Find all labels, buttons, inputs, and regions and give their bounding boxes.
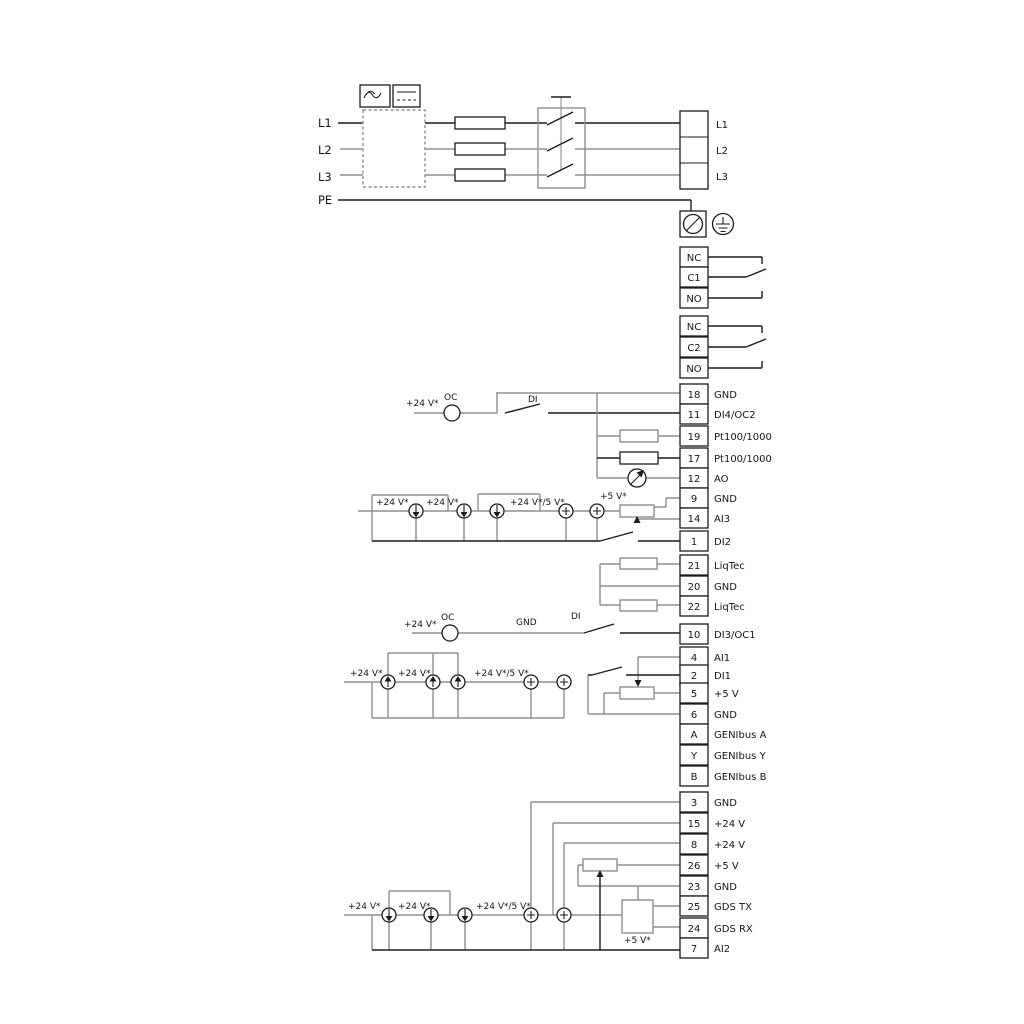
terminal-label: AI3: [714, 514, 730, 525]
terminal-label: +24 V: [714, 819, 745, 830]
wiring-diagram: L1 L2 L3 PE L1 L2 L3 NC: [0, 0, 1024, 1024]
wire-label-24v: +24 V*: [348, 902, 381, 912]
terminal-number: 14: [688, 514, 701, 525]
terminal-number: 17: [688, 454, 701, 465]
oc-node-icon: [444, 405, 460, 421]
wire-label-5v: +5 V*: [600, 492, 627, 502]
wiper-arrow-icon: [635, 680, 642, 687]
terminal-number: 22: [688, 602, 701, 613]
terminal-number: 18: [688, 390, 701, 401]
supply-network-row2: +24 V* +24 V* +24 V*/5 V*: [344, 653, 680, 718]
terminal-number: 15: [688, 819, 701, 830]
relay1-contact: [708, 257, 766, 298]
terminal-label: AI2: [714, 944, 730, 955]
terminal-label: GENIbus B: [714, 772, 767, 783]
power-terminal-group: +5 V* +24 V* +24 V* +24 V*/5 V* 3 GND 15…: [344, 792, 753, 958]
control-terminal-group: +24 V* OC GND DI +24 V* +24 V* +24 V*/5 …: [344, 612, 767, 786]
terminal-label: Pt100/1000: [714, 432, 772, 443]
mains-left-label: L3: [318, 170, 332, 184]
mains-left-label: L2: [318, 143, 332, 157]
di2-switch: [600, 532, 633, 541]
terminal-number: 26: [688, 861, 701, 872]
di3-switch: [584, 624, 680, 633]
wire-label-24v: +24 V*: [404, 620, 437, 630]
terminal-number: 2: [691, 671, 697, 682]
terminal-number: 6: [691, 710, 697, 721]
fuse-l2: [455, 143, 505, 155]
di1-switch: [588, 667, 680, 675]
terminal-label: DI1: [714, 671, 731, 682]
mains-right-label: L1: [716, 120, 728, 131]
terminal-label: AI1: [714, 653, 730, 664]
terminal-label: +5 V: [714, 689, 739, 700]
terminal-number: 23: [688, 882, 701, 893]
gds-sensor-box: [622, 900, 653, 933]
terminal-label: GND: [714, 710, 737, 721]
liqtec-sensor-1: [620, 558, 657, 569]
mains-right-label: L3: [716, 172, 728, 183]
terminal-label: GND: [714, 798, 737, 809]
terminal-label: GND: [714, 494, 737, 505]
mains-right-label: L2: [716, 146, 728, 157]
liqtec-wiring: [600, 564, 680, 605]
potentiometer: [620, 505, 654, 517]
mains-left-label: L1: [318, 116, 332, 130]
terminal-label: LiqTec: [714, 602, 745, 613]
io-terminal-group: +24 V* OC DI +24 V* +24 V* +24 V*/5 V* +…: [358, 384, 772, 551]
mains-terminal-block: [680, 111, 708, 189]
wire-label-24v-5v: +24 V*/5 V*: [476, 902, 531, 912]
relay2-nc: NC: [687, 322, 701, 333]
relay1-no: NO: [686, 294, 701, 305]
relay2-contact: [708, 326, 766, 368]
relay2-block: NC C2 NO: [680, 316, 766, 378]
terminal-label: +24 V: [714, 840, 745, 851]
terminal-number: 7: [691, 944, 697, 955]
terminal-number: 19: [688, 432, 701, 443]
terminal-number: 12: [688, 474, 701, 485]
pt100-sensor-2: [620, 452, 658, 464]
pe-wire: [338, 200, 691, 211]
terminal-number: 11: [688, 410, 701, 421]
terminal-label: GENIbus Y: [714, 751, 767, 762]
relay1-block: NC C1 NO: [680, 247, 766, 308]
wire-label-oc: OC: [444, 393, 457, 403]
wire-label-24v-5v: +24 V*/5 V*: [474, 669, 529, 679]
emc-filter-box: [363, 110, 425, 187]
wire-label-oc: OC: [441, 613, 454, 623]
terminal-label: Pt100/1000: [714, 454, 772, 465]
terminal-number: 20: [688, 582, 701, 593]
mains-left-label: PE: [318, 193, 332, 207]
terminal-number: B: [691, 772, 698, 783]
wire-label-24v: +24 V*: [406, 399, 439, 409]
terminal-label: DI2: [714, 537, 731, 548]
terminal-label: AO: [714, 474, 729, 485]
wire-label-24v-5v: +24 V*/5 V*: [510, 498, 565, 508]
terminal-number: 8: [691, 840, 697, 851]
oc-node-icon: [442, 625, 458, 641]
terminal-number: 25: [688, 902, 701, 913]
liqtec-terminal-group: 21 LiqTec 20 GND 22 LiqTec: [600, 555, 745, 616]
pt100-sensor-1: [620, 430, 658, 442]
wire-label-24v: +24 V*: [376, 498, 409, 508]
terminal-number: 1: [691, 537, 697, 548]
terminal-number: 5: [691, 689, 697, 700]
terminal-label: DI3/OC1: [714, 630, 756, 641]
terminal-number: 10: [688, 630, 701, 641]
relay2-c2: C2: [687, 343, 700, 354]
terminal-label: LiqTec: [714, 561, 745, 572]
liqtec-sensor-2: [620, 600, 657, 611]
terminal-number: A: [691, 730, 698, 741]
terminal-label: GND: [714, 390, 737, 401]
mains-section: L1 L2 L3 PE L1 L2 L3: [318, 85, 734, 237]
wire-label-24v: +24 V*: [426, 498, 459, 508]
terminal-label: GND: [714, 582, 737, 593]
relay1-c1: C1: [687, 273, 700, 284]
fuse-l3: [455, 169, 505, 181]
wire-label-5v: +5 V*: [624, 936, 651, 946]
di4-switch: [505, 404, 680, 413]
potentiometer: [583, 859, 617, 871]
terminal-number: 21: [688, 561, 701, 572]
relay1-nc: NC: [687, 253, 701, 264]
terminal-number: Y: [690, 751, 698, 762]
l2-l3-wires: [340, 149, 680, 175]
relay2-no: NO: [686, 364, 701, 375]
terminal-label: GENIbus A: [714, 730, 767, 741]
terminal-label: DI4/OC2: [714, 410, 756, 421]
wire-label-di: DI: [571, 612, 581, 622]
wire-label-gnd: GND: [516, 618, 537, 628]
dc-symbol-box: [393, 85, 420, 107]
terminal-number: 3: [691, 798, 697, 809]
terminal-number: 4: [691, 653, 697, 664]
terminal-number: 24: [688, 924, 701, 935]
contactor-arms: [547, 112, 573, 177]
terminal-label: GDS TX: [714, 902, 752, 913]
potentiometer: [620, 687, 654, 699]
supply-network-row1: +24 V* +24 V* +24 V*/5 V* +5 V*: [358, 492, 680, 541]
wire-label-di: DI: [528, 395, 538, 405]
terminal-label: GND: [714, 882, 737, 893]
terminal-number: 9: [691, 494, 697, 505]
terminal-label: +5 V: [714, 861, 739, 872]
supply-network-row3: +24 V* +24 V* +24 V*/5 V*: [348, 902, 571, 922]
wire-label-24v: +24 V*: [350, 669, 383, 679]
wire-label-24v: +24 V*: [398, 669, 431, 679]
fuse-l1: [455, 117, 505, 129]
terminal-label: GDS RX: [714, 924, 753, 935]
